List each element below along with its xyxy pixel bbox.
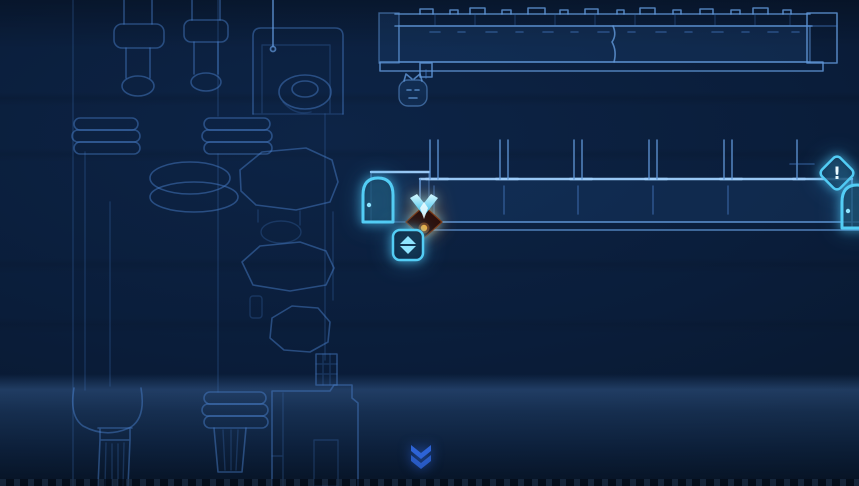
top-platform [379, 8, 837, 106]
door-icon[interactable] [357, 171, 399, 225]
bottom-clipped-strip [0, 479, 859, 486]
chevron-down-icon [411, 445, 431, 459]
door-handle [846, 209, 850, 213]
game-scene: ! [0, 0, 859, 486]
door-handle [367, 203, 371, 207]
door-icon[interactable] [838, 179, 859, 231]
machinery-left [72, 0, 358, 486]
hanging-jar [399, 63, 432, 106]
lift-button-icon[interactable] [390, 227, 426, 263]
scroll-down-icon[interactable] [408, 444, 434, 474]
